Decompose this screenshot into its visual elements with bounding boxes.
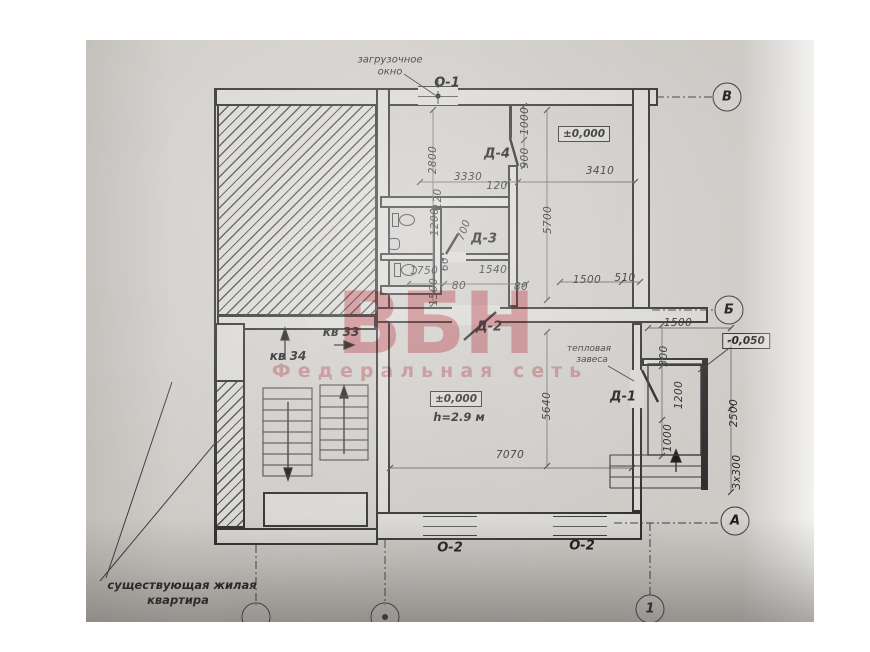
scanned-floor-plan: загрузочное окно О-1 О-2 О-2 Д-4 Д-3 Д-2… xyxy=(86,40,814,622)
axis-marker-b: Б xyxy=(715,296,744,325)
dimension-label: 80 xyxy=(514,281,528,293)
loading-window-label-line2: окно xyxy=(378,67,403,78)
axis-marker-dot xyxy=(382,614,388,620)
dimension-label: 510 xyxy=(614,272,635,284)
dimension-label: 60 xyxy=(439,257,451,271)
dimension-label: 2500 xyxy=(728,399,740,427)
window-o2-left-label: О-2 xyxy=(437,541,463,556)
level-mark-minus: -0,050 xyxy=(722,333,770,349)
dimension-label: 900 xyxy=(519,147,531,168)
dimension-label: 1000 xyxy=(519,107,531,135)
dimension-label: 120 xyxy=(486,180,507,192)
dimension-label: 5640 xyxy=(541,392,553,420)
dimension-label: 1200 xyxy=(429,208,441,236)
dimension-label: 300 xyxy=(658,345,670,366)
dimension-label: 1500 xyxy=(573,274,601,286)
level-mark-zero-main: ±0,000 xyxy=(430,391,482,407)
stairs xyxy=(86,40,814,622)
dimension-label: 5700 xyxy=(542,206,554,234)
dimension-label: 1500 xyxy=(664,317,692,329)
axis-marker-v: В xyxy=(713,83,742,112)
door-d1-label: Д-1 xyxy=(610,390,636,405)
apartment-33-label: кв 33 xyxy=(323,325,360,339)
dimension-label: 1000 xyxy=(662,424,674,452)
dimension-label: 1500 xyxy=(428,278,440,306)
axis-marker-1: 1 xyxy=(636,595,665,623)
door-d4-label: Д-4 xyxy=(484,147,510,162)
room-height-label: h=2.9 м xyxy=(433,410,485,424)
axis-marker-a: А xyxy=(721,507,750,536)
window-o1-label: О-1 xyxy=(434,76,460,91)
dimension-label: 3330 xyxy=(454,171,482,183)
dimension-label: 1540 xyxy=(479,264,507,276)
thermal-curtain-label-line1: тепловая xyxy=(567,344,611,354)
thermal-curtain-label-line2: завеса xyxy=(576,355,608,365)
window-o2-right-label: О-2 xyxy=(569,539,595,554)
dimension-label: 80 xyxy=(452,280,466,292)
dimension-label: 1200 xyxy=(673,381,685,409)
dimension-label: 3x300 xyxy=(731,455,743,490)
dimension-label: 120 xyxy=(432,188,444,209)
screenshot: загрузочное окно О-1 О-2 О-2 Д-4 Д-3 Д-2… xyxy=(0,0,870,652)
dimension-label: 1750 xyxy=(410,265,438,277)
dimension-label: 2800 xyxy=(427,146,439,174)
level-mark-zero-top: ±0,000 xyxy=(558,126,610,142)
existing-apartment-label-line1: существующая жилая xyxy=(107,578,256,592)
door-d3-label: Д-3 xyxy=(471,232,497,247)
existing-apartment-label-line2: квартира xyxy=(147,593,209,607)
door-d2-label: Д-2 xyxy=(476,320,502,335)
apartment-34-label: кв 34 xyxy=(270,349,307,363)
loading-window-label-line1: загрузочное xyxy=(357,55,422,66)
dimension-label: 3410 xyxy=(586,165,614,177)
dimension-label: 7070 xyxy=(496,449,524,461)
